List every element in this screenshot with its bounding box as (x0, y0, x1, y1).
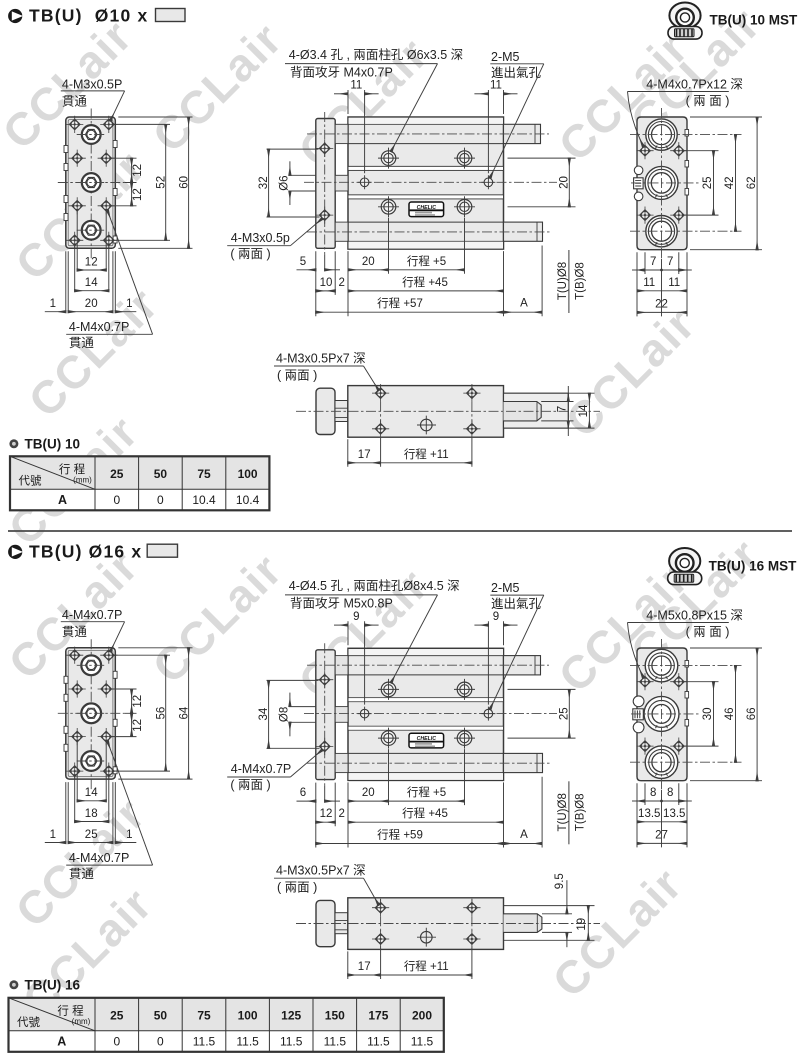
svg-text:11.5: 11.5 (324, 1035, 347, 1049)
svg-text:62: 62 (746, 177, 758, 190)
svg-text:25: 25 (85, 829, 98, 841)
svg-text:0: 0 (113, 1035, 120, 1049)
svg-text:12: 12 (132, 164, 144, 177)
svg-text:11.5: 11.5 (193, 1035, 216, 1049)
svg-text:46: 46 (724, 708, 736, 721)
svg-text:4-M3x0.5Px7 深: 4-M3x0.5Px7 深 (276, 351, 366, 365)
svg-text:17: 17 (358, 961, 371, 973)
svg-text:A: A (57, 1035, 66, 1049)
svg-text:進出氣孔: 進出氣孔 (491, 66, 542, 80)
svg-text:20: 20 (559, 176, 571, 189)
svg-text:12: 12 (85, 256, 98, 268)
svg-text:A: A (520, 298, 528, 310)
svg-text:11: 11 (643, 277, 655, 289)
svg-text:60: 60 (178, 176, 190, 189)
svg-text:行程 +45: 行程 +45 (402, 276, 448, 289)
svg-text:( 兩 面 ): ( 兩 面 ) (686, 94, 730, 108)
svg-text:22: 22 (655, 299, 668, 311)
svg-text:Ø6: Ø6 (279, 175, 291, 190)
svg-text:25: 25 (110, 1008, 124, 1022)
svg-text:行程 +11: 行程 +11 (404, 448, 449, 461)
svg-text:25: 25 (559, 707, 571, 720)
svg-text:0: 0 (157, 493, 164, 507)
svg-text:行程 +57: 行程 +57 (377, 297, 423, 310)
svg-text:2-M5: 2-M5 (491, 581, 520, 595)
svg-text:75: 75 (197, 1008, 211, 1022)
svg-text:貫通: 貫通 (62, 94, 88, 108)
svg-text:11: 11 (668, 277, 680, 289)
svg-text:TB(U) 10: TB(U) 10 (25, 437, 81, 452)
svg-text:代號: 代號 (17, 1016, 40, 1029)
svg-text:9: 9 (493, 611, 499, 623)
svg-text:42: 42 (724, 177, 736, 190)
svg-text:T(B)Ø8: T(B)Ø8 (574, 793, 586, 831)
svg-text:12: 12 (132, 719, 144, 732)
svg-text:1: 1 (126, 829, 132, 841)
svg-text:2-M5: 2-M5 (491, 50, 520, 64)
svg-text:行程 +11: 行程 +11 (404, 960, 449, 973)
svg-text:19: 19 (576, 918, 588, 931)
svg-text:8: 8 (667, 787, 673, 799)
svg-text:7: 7 (650, 256, 656, 268)
svg-text:行 程: 行 程 (59, 463, 86, 476)
svg-text:( 兩面 ): ( 兩面 ) (230, 247, 270, 261)
svg-text:貫通: 貫通 (69, 336, 95, 350)
svg-text:4-Ø4.5 孔 , 兩面柱孔Ø8x4.5 深: 4-Ø4.5 孔 , 兩面柱孔Ø8x4.5 深 (289, 578, 460, 593)
svg-text:52: 52 (156, 176, 168, 189)
svg-text:( 兩面 ): ( 兩面 ) (230, 778, 270, 792)
svg-text:12: 12 (132, 695, 144, 708)
svg-text:100: 100 (238, 1008, 258, 1022)
svg-text:12: 12 (132, 188, 144, 201)
svg-text:T(U)Ø8: T(U)Ø8 (557, 793, 569, 831)
svg-text:13.5: 13.5 (663, 808, 685, 820)
svg-text:背面攻牙 M5x0.8P: 背面攻牙 M5x0.8P (290, 597, 393, 611)
svg-text:(mm): (mm) (73, 475, 92, 484)
svg-text:100: 100 (238, 467, 258, 481)
svg-text:2: 2 (338, 277, 344, 289)
svg-text:( 兩 面 ): ( 兩 面 ) (686, 625, 730, 639)
svg-text:12: 12 (320, 808, 333, 820)
svg-text:TB(U) 10 MST: TB(U) 10 MST (710, 13, 799, 28)
svg-text:18: 18 (85, 808, 98, 820)
svg-text:25: 25 (702, 177, 714, 190)
svg-text:11.5: 11.5 (367, 1035, 390, 1049)
svg-text:TB(U) 16 MST: TB(U) 16 MST (709, 559, 798, 574)
svg-text:4-M3x0.5p: 4-M3x0.5p (231, 231, 290, 245)
svg-text:背面攻牙 M4x0.7P: 背面攻牙 M4x0.7P (290, 65, 393, 79)
svg-text:17: 17 (358, 449, 371, 461)
svg-text:20: 20 (362, 256, 375, 268)
svg-text:4-M4x0.7Px12 深: 4-M4x0.7Px12 深 (646, 78, 743, 92)
svg-text:7: 7 (667, 256, 673, 268)
svg-text:20: 20 (85, 298, 98, 310)
svg-text:代號: 代號 (19, 474, 42, 487)
svg-text:75: 75 (197, 467, 211, 481)
svg-text:行程 +5: 行程 +5 (407, 255, 446, 268)
svg-text:4-M3x0.5P: 4-M3x0.5P (62, 77, 122, 91)
svg-text:1: 1 (50, 829, 56, 841)
svg-text:A: A (58, 493, 67, 507)
svg-text:9: 9 (353, 611, 359, 623)
svg-text:10: 10 (320, 277, 333, 289)
svg-text:2: 2 (338, 808, 344, 820)
svg-text:66: 66 (746, 708, 758, 721)
svg-text:4-M4x0.7P: 4-M4x0.7P (62, 608, 122, 622)
svg-text:50: 50 (154, 1008, 168, 1022)
svg-text:4-M3x0.5Px7 深: 4-M3x0.5Px7 深 (276, 864, 366, 878)
svg-text:5: 5 (300, 256, 306, 268)
svg-text:( 兩面 ): ( 兩面 ) (277, 368, 317, 382)
svg-text:T(U)Ø8: T(U)Ø8 (557, 262, 569, 300)
svg-text:1: 1 (126, 298, 132, 310)
svg-text:11.5: 11.5 (411, 1035, 434, 1049)
svg-text:30: 30 (702, 708, 714, 721)
svg-text:4-M4x0.7P: 4-M4x0.7P (231, 762, 291, 776)
svg-text:1: 1 (50, 298, 56, 310)
svg-text:行程 +5: 行程 +5 (407, 786, 446, 799)
svg-text:150: 150 (325, 1008, 345, 1022)
svg-text:TB(U) Ø10 x: TB(U) Ø10 x (29, 6, 148, 26)
svg-text:行 程: 行 程 (57, 1004, 84, 1017)
svg-text:TB(U) Ø16 x: TB(U) Ø16 x (29, 542, 142, 562)
svg-text:32: 32 (258, 176, 270, 189)
svg-text:4-M5x0.8Px15 深: 4-M5x0.8Px15 深 (646, 609, 743, 623)
svg-text:11: 11 (490, 80, 502, 92)
svg-text:TB(U) 16: TB(U) 16 (25, 978, 81, 993)
svg-text:11.5: 11.5 (280, 1035, 303, 1049)
svg-text:4-Ø3.4 孔 , 兩面柱孔 Ø6x3.5 深: 4-Ø3.4 孔 , 兩面柱孔 Ø6x3.5 深 (289, 47, 463, 62)
svg-text:4-M4x0.7P: 4-M4x0.7P (69, 851, 129, 865)
svg-text:8: 8 (650, 787, 656, 799)
svg-text:175: 175 (368, 1008, 388, 1022)
svg-text:10.4: 10.4 (192, 493, 216, 507)
svg-text:13.5: 13.5 (638, 808, 660, 820)
svg-text:6: 6 (300, 787, 306, 799)
svg-text:125: 125 (281, 1008, 301, 1022)
svg-text:14: 14 (85, 277, 98, 289)
svg-text:( 兩面 ): ( 兩面 ) (277, 881, 317, 895)
svg-text:34: 34 (258, 707, 270, 720)
svg-text:0: 0 (113, 493, 120, 507)
svg-text:Ø8: Ø8 (279, 707, 291, 722)
svg-text:7: 7 (556, 406, 568, 412)
svg-text:20: 20 (362, 787, 375, 799)
svg-text:A: A (520, 829, 528, 841)
svg-text:11: 11 (350, 80, 362, 92)
svg-text:4-M4x0.7P: 4-M4x0.7P (69, 320, 129, 334)
svg-text:0: 0 (157, 1035, 164, 1049)
svg-text:14: 14 (85, 787, 98, 799)
svg-text:64: 64 (178, 706, 190, 719)
svg-text:10.4: 10.4 (236, 493, 260, 507)
svg-text:25: 25 (110, 467, 124, 481)
svg-text:9.5: 9.5 (554, 873, 566, 889)
svg-text:14: 14 (578, 404, 590, 417)
svg-text:行程 +45: 行程 +45 (402, 807, 448, 820)
svg-text:T(B)Ø8: T(B)Ø8 (574, 262, 586, 300)
svg-text:進出氣孔: 進出氣孔 (491, 597, 542, 611)
svg-text:50: 50 (154, 467, 168, 481)
svg-text:(mm): (mm) (72, 1017, 91, 1026)
svg-text:56: 56 (156, 707, 168, 720)
svg-text:11.5: 11.5 (236, 1035, 259, 1049)
svg-text:貫通: 貫通 (69, 867, 95, 881)
svg-text:27: 27 (655, 830, 668, 842)
svg-text:200: 200 (412, 1008, 432, 1022)
svg-text:行程 +59: 行程 +59 (377, 829, 423, 842)
svg-text:貫通: 貫通 (62, 625, 88, 639)
